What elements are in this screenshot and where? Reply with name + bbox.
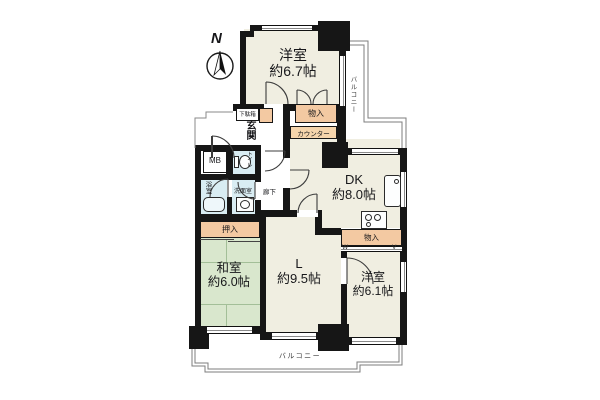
room-size: 約9.5帖 — [263, 272, 335, 287]
room-name: 洋室 — [253, 47, 333, 63]
entrance-label: 玄関 — [242, 120, 257, 140]
stove-unit — [361, 211, 387, 229]
wall-toilet-left — [226, 151, 233, 174]
wall-wet-bottom — [195, 214, 261, 221]
shoe-box-cabinet — [259, 108, 273, 123]
bathtub-icon — [203, 197, 225, 212]
stove-burner — [366, 222, 371, 227]
room-size: 約6.0帖 — [193, 275, 265, 289]
room-size: 約6.1帖 — [342, 285, 404, 299]
stove-burner — [365, 214, 372, 221]
window — [352, 337, 396, 345]
counter-label: カウンター — [290, 128, 337, 138]
window — [207, 326, 252, 334]
toilet-door-swing — [265, 151, 285, 171]
window — [339, 56, 346, 106]
window — [400, 172, 407, 207]
wall-right-of-counter — [337, 104, 346, 146]
hallway-label: 廊下 — [263, 186, 276, 196]
porch-outline — [195, 112, 233, 148]
room-label-dk: DK 約8.0帖 — [318, 173, 390, 203]
balcony-right-outline — [350, 41, 406, 148]
balcony-bottom-label: バルコニー — [275, 351, 325, 361]
floor-plan: N 洋室 約6.7帖 バルコニー 下駄箱 物入 カウンター 玄関 MB トイレ … — [0, 0, 600, 400]
meter-box-label: MB — [204, 156, 226, 165]
room-name: 洋室 — [342, 271, 404, 285]
pillar-bottom-left — [189, 326, 209, 349]
compass-north-label: N — [211, 30, 222, 47]
tatami-line — [226, 305, 227, 326]
window — [352, 148, 398, 155]
sliding-door-line — [200, 239, 234, 240]
room-name: L — [263, 257, 335, 272]
room-label-western-br: 洋室 約6.1帖 — [342, 271, 404, 299]
pillar-dk — [322, 142, 348, 168]
kitchen-faucet — [394, 179, 399, 184]
window — [262, 25, 312, 31]
room-size: 約6.7帖 — [253, 63, 333, 79]
tatami-line — [200, 304, 260, 305]
toilet-label: トイレ — [245, 151, 253, 168]
sliding-door-line — [228, 241, 260, 242]
wall-hall-left — [255, 145, 261, 217]
doorway — [297, 210, 318, 217]
window — [272, 332, 316, 340]
washroom-label: 洗面室 — [230, 186, 256, 195]
folding-door-mark-w: W — [342, 244, 348, 251]
compass-icon — [207, 51, 233, 79]
folding-door-mark-v: V — [392, 244, 396, 251]
room-label-living: L 約9.5帖 — [263, 257, 335, 287]
shoe-box-label: 下駄箱 — [236, 110, 259, 118]
oshiire-label: 押入 — [205, 224, 255, 235]
tatami-line — [226, 239, 227, 262]
room-name: 和室 — [193, 261, 265, 275]
room-label-western-top: 洋室 約6.7帖 — [253, 47, 333, 79]
pillar-bottom-mid — [318, 324, 349, 351]
wash-basin-bowl — [240, 200, 250, 209]
room-size: 約8.0帖 — [318, 188, 390, 203]
balcony-right-outline-inner — [350, 45, 402, 148]
bathroom-label: 浴室 — [202, 181, 212, 194]
stove-burner — [374, 214, 381, 221]
wall-left-western-top — [240, 31, 246, 108]
room-label-japanese: 和室 約6.0帖 — [193, 261, 265, 290]
doorway — [283, 158, 290, 188]
room-name: DK — [318, 173, 390, 188]
closet-top-label: 物入 — [295, 108, 337, 119]
wall-stub-h — [318, 228, 341, 235]
closet-right-label: 物入 — [346, 232, 397, 243]
balcony-right-label: バルコニー — [347, 76, 357, 114]
